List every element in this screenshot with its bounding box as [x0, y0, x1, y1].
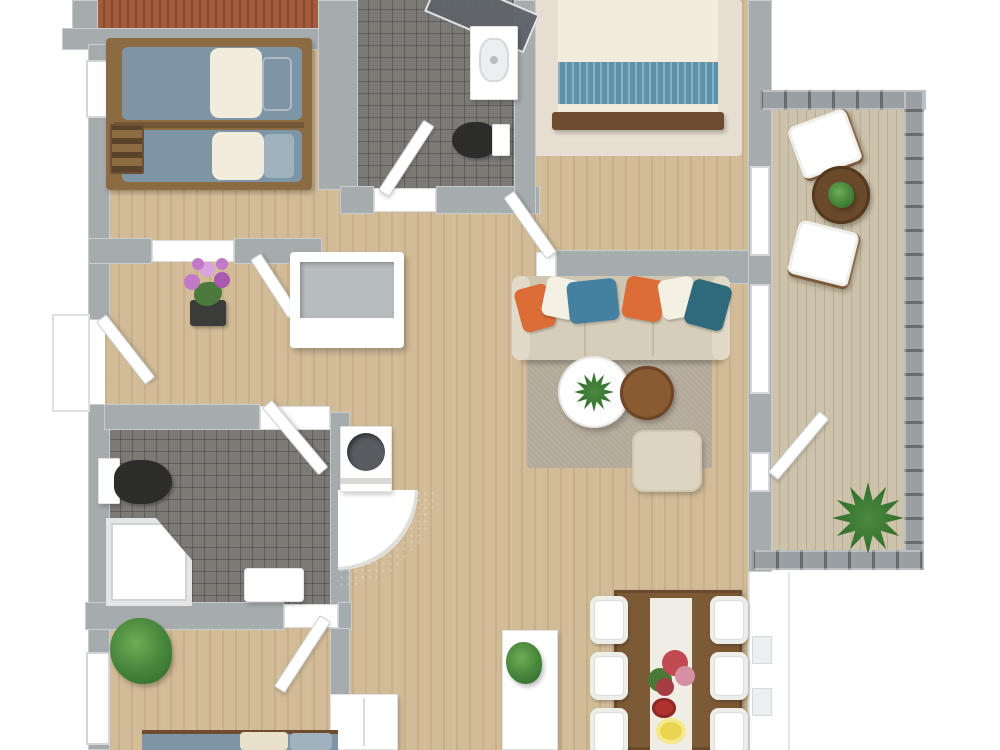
pouf — [632, 430, 702, 492]
dining-chair — [710, 596, 748, 644]
balcony-window — [750, 452, 770, 492]
top-deck-floor — [95, 0, 333, 30]
wall — [338, 602, 352, 630]
bouquet-flower-darkred — [656, 678, 674, 696]
toilet-tank — [492, 124, 510, 156]
wall — [85, 602, 284, 630]
bottom-bed-pillow — [240, 732, 288, 750]
exterior-window — [752, 688, 772, 716]
master-bed — [552, 0, 724, 130]
floor-plan — [0, 0, 1000, 750]
bunk-duvet-bottom — [212, 132, 264, 180]
bunk-pillow-top — [262, 57, 292, 111]
bath-mat — [244, 568, 304, 602]
sink-tap — [490, 56, 498, 64]
door-threshold — [284, 604, 338, 628]
dining-chair — [590, 596, 628, 644]
wall — [88, 238, 152, 264]
orchid-plant-stand — [182, 256, 234, 330]
balcony-railing-top — [760, 90, 926, 110]
sideboard-plant — [506, 642, 542, 684]
bed-blanket-teal — [558, 62, 718, 106]
wall — [330, 628, 350, 700]
bunk-ladder — [110, 124, 144, 174]
wall — [318, 0, 358, 190]
dining-chair — [590, 652, 628, 700]
wall — [104, 404, 260, 430]
fireplace-cabinet — [340, 426, 392, 492]
yellow-plate — [656, 718, 686, 744]
wall — [340, 186, 374, 214]
orchid-flower — [214, 272, 230, 288]
orchid-flower — [216, 258, 228, 270]
orchid-flower — [184, 274, 200, 290]
fireplace-shelf — [340, 478, 392, 484]
sofa-pillow-blue — [566, 278, 620, 325]
sofa — [512, 272, 730, 364]
fireplace-bowl — [347, 433, 385, 471]
orchid-flower — [192, 258, 204, 270]
dining-chair — [710, 708, 748, 750]
bed-duvet — [558, 0, 718, 64]
wall — [72, 0, 98, 30]
bed-footboard — [552, 112, 724, 130]
exterior-window — [752, 636, 772, 664]
bunk-bed — [106, 38, 312, 190]
dining-chair — [590, 708, 628, 750]
dining-chair — [710, 652, 748, 700]
bunk-duvet-top — [210, 48, 262, 118]
bunk-pillow-bottom — [264, 134, 294, 178]
bottom-bed-pillow — [290, 733, 332, 750]
balcony-railing-right — [904, 90, 924, 568]
balcony-table-plant — [828, 182, 854, 208]
toilet-bowl — [452, 122, 496, 158]
potted-plant — [110, 618, 172, 684]
storage-bench — [290, 252, 404, 348]
balcony-window — [750, 284, 770, 394]
entry-porch — [52, 314, 90, 412]
toilet-bowl — [114, 460, 172, 504]
wardrobe — [330, 694, 398, 750]
bouquet-flower-pink — [675, 666, 695, 686]
storage-bench-interior — [300, 262, 394, 318]
balcony-window — [750, 166, 770, 256]
balcony-railing-bottom — [752, 550, 924, 570]
wardrobe-divider — [363, 698, 365, 746]
red-bowl — [652, 698, 676, 718]
flower-bouquet — [648, 650, 696, 706]
side-table-brown — [620, 366, 674, 420]
window — [86, 652, 110, 745]
sink-vanity — [470, 26, 518, 100]
